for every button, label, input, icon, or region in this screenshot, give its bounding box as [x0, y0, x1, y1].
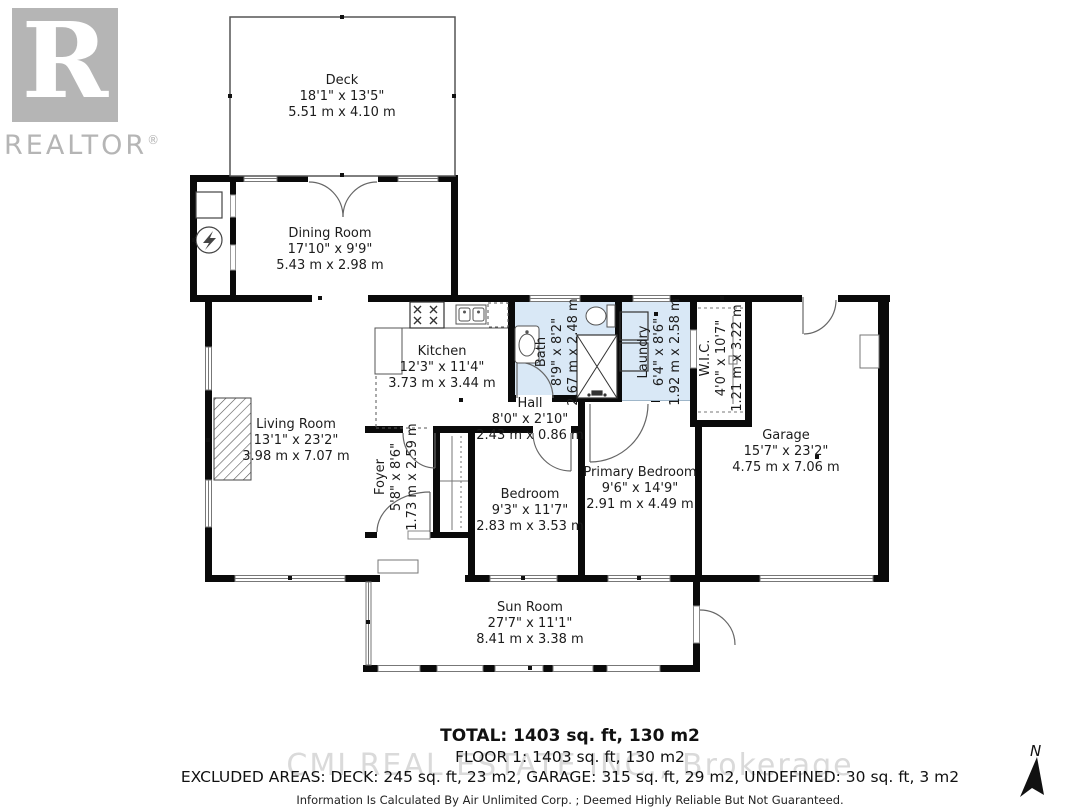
garage-shelf — [860, 335, 879, 368]
french-door-left — [309, 182, 343, 217]
kitchen-sink-icon — [456, 305, 486, 324]
room-label-deck: Deck 18'1" x 13'5" 5.51 m x 4.10 m — [288, 73, 395, 121]
primary-bedroom-door — [590, 404, 648, 462]
entry-step — [378, 560, 418, 573]
foyer-closet-detail — [440, 436, 468, 530]
realtor-logo-mark: R — [12, 8, 118, 122]
shower-icon — [577, 335, 617, 398]
garage-entry-door — [804, 300, 836, 334]
floor-plan-page: CMI REAL ESTATE INC., Brokerage — [0, 0, 1080, 810]
room-label-laundry: Laundry 6'4" x 8'6" 1.92 m x 2.58 m — [636, 298, 684, 405]
realtor-logo-word: REALTOR® — [4, 130, 130, 161]
area-summary: TOTAL: 1403 sq. ft, 130 m2 FLOOR 1: 1403… — [90, 726, 1050, 807]
room-label-primary-bedroom: Primary Bedroom 9'6" x 14'9" 2.91 m x 4.… — [583, 465, 696, 513]
room-label-hall: Hall 8'0" x 2'10" 2.43 m x 0.86 m — [476, 396, 583, 444]
sunroom-exterior-door — [700, 610, 735, 645]
room-label-wic: W.I.C. 4'0" x 10'7" 1.21 m x 3.22 m — [698, 304, 746, 411]
realtor-logo: R REALTOR® — [10, 8, 130, 161]
stove-icon — [410, 302, 444, 328]
room-label-living: Living Room 13'1" x 23'2" 3.98 m x 7.07 … — [242, 417, 349, 465]
disclaimer-text: Information Is Calculated By Air Unlimit… — [90, 793, 1050, 807]
room-label-foyer: Foyer 5'8" x 8'6" 1.73 m x 2.59 m — [373, 423, 421, 530]
excluded-areas-text: EXCLUDED AREAS: DECK: 245 sq. ft, 23 m2,… — [90, 768, 1050, 786]
room-label-kitchen: Kitchen 12'3" x 11'4" 3.73 m x 3.44 m — [388, 344, 495, 392]
total-area-text: TOTAL: 1403 sq. ft, 130 m2 — [90, 726, 1050, 746]
room-label-dining: Dining Room 17'10" x 9'9" 5.43 m x 2.98 … — [276, 226, 383, 274]
utility-room-icons — [196, 192, 222, 253]
french-door-right — [343, 182, 377, 217]
utility-shelf-icon — [196, 192, 222, 218]
room-label-bath: Bath 8'9" x 8'2" 2.67 m x 2.48 m — [534, 298, 582, 405]
room-label-garage: Garage 15'7" x 23'2" 4.75 m x 7.06 m — [732, 428, 839, 476]
north-arrow: N — [1002, 726, 1072, 806]
floor-area-text: FLOOR 1: 1403 sq. ft, 130 m2 — [90, 748, 1050, 766]
room-label-bedroom: Bedroom 9'3" x 11'7" 2.83 m x 3.53 m — [476, 487, 583, 535]
toilet-icon — [586, 305, 615, 327]
north-arrow-icon — [1002, 726, 1072, 806]
room-label-sunroom: Sun Room 27'7" x 11'1" 8.41 m x 3.38 m — [476, 600, 583, 648]
